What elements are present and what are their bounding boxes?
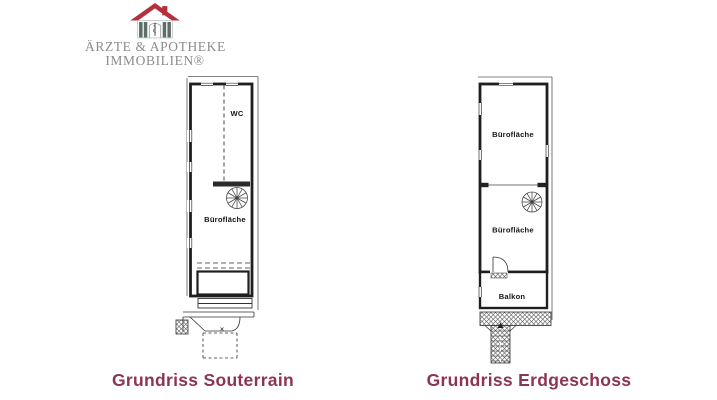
caption-souterrain: Grundriss Souterrain xyxy=(53,370,353,391)
dashed-exterior-stair-outline xyxy=(203,333,237,358)
interior-wall xyxy=(213,182,250,187)
brochure-page: ÄRZTE & APOTHEKE IMMOBILIEN® xyxy=(0,0,717,400)
erdgeschoss-floorplan: Bürofläche Bürofläche Balkon xyxy=(455,65,555,375)
room-label-office: Bürofläche xyxy=(204,215,246,224)
room-label-wc: WC xyxy=(230,109,243,118)
spiral-staircase-icon xyxy=(227,188,248,209)
spiral-staircase-icon xyxy=(522,192,542,212)
balcony-walls xyxy=(480,272,547,308)
souterrain-floorplan: WC Bürofläche xyxy=(170,70,265,370)
room-label-office-upper: Bürofläche xyxy=(492,130,534,139)
exterior-entrance xyxy=(176,312,254,358)
logo: ÄRZTE & APOTHEKE IMMOBILIEN® xyxy=(85,3,225,67)
roof-shape xyxy=(130,3,179,20)
logo-house-icon xyxy=(129,3,181,40)
hatched-exterior-stairs xyxy=(480,312,551,363)
brand-name-line2: IMMOBILIEN® xyxy=(85,54,225,67)
caption-erdgeschoss: Grundriss Erdgeschoss xyxy=(379,370,679,391)
room-label-balcony: Balkon xyxy=(499,292,526,301)
room-label-office-lower: Bürofläche xyxy=(492,226,534,235)
exterior-walls xyxy=(480,84,547,272)
brand-name-line1: ÄRZTE & APOTHEKE xyxy=(85,40,225,53)
entry-steps xyxy=(198,299,252,309)
